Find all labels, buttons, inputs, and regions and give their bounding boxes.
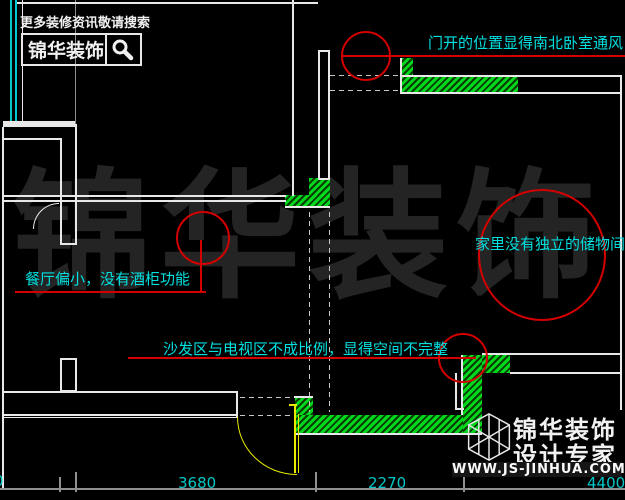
dimension-tick [315, 472, 317, 492]
annotation-red-circle-storage [478, 189, 606, 321]
hatched-wall [285, 195, 330, 206]
dashed-opening-line [240, 397, 293, 398]
hatched-wall [400, 77, 518, 92]
wall-segment-top [17, 2, 318, 4]
wall-segment [400, 75, 621, 77]
wall-segment [3, 195, 286, 197]
search-box[interactable]: 锦华装饰 [21, 33, 142, 66]
cube-logo-icon [466, 412, 512, 466]
dimension-value-partial: 0 [0, 472, 4, 490]
search-box-divider [105, 35, 107, 64]
dimension-line [0, 488, 625, 490]
wall-segment [4, 138, 60, 140]
door-leaf-line [294, 405, 296, 473]
hatched-wall [295, 415, 482, 433]
dimension-value-2270: 2270 [368, 474, 406, 492]
wall-segment [60, 138, 62, 245]
dashed-opening-line [240, 415, 293, 416]
wall-segment [294, 396, 313, 398]
annotation-red-circle-dining [176, 211, 230, 265]
wall-segment [400, 92, 621, 94]
annotation-door-vent: 门开的位置显得南北卧室通风 [428, 35, 623, 51]
hatched-wall [295, 397, 313, 415]
wall-left-edge [2, 127, 4, 489]
floor-plan-screenshot: 锦华装饰 更多装修资讯敬请搜索 锦华装饰 门开的位置显得南北卧室通风 [0, 0, 625, 500]
annotation-storage: 家里没有独立的储物间 [475, 236, 625, 252]
wall-segment [455, 408, 464, 410]
dimension-tick [75, 472, 77, 492]
door-leaf-jog [289, 404, 297, 406]
wall-cyan-line-2 [15, 0, 17, 122]
annotation-red-circle-door [341, 31, 391, 81]
dashed-opening-line [309, 212, 310, 412]
annotation-sofa-tv: 沙发区与电视区不成比例，显得空间不完整 [163, 341, 448, 357]
annotation-leader-line [200, 240, 202, 292]
wall-segment [3, 391, 238, 393]
dimension-value-3680: 3680 [178, 474, 216, 492]
wall-segment [292, 0, 294, 196]
column-outline [60, 358, 77, 392]
wall-band [3, 121, 75, 127]
wall-segment [3, 414, 238, 416]
annotation-red-line-dining [15, 291, 206, 293]
search-banner-tagline: 更多装修资讯敬请搜索 [20, 12, 150, 31]
wall-segment [60, 243, 77, 245]
wall-segment [75, 124, 77, 245]
brand-name: 锦华装饰 [23, 36, 104, 63]
dimension-tick [59, 477, 61, 492]
wall-segment [3, 200, 286, 202]
magnifier-search-icon[interactable] [111, 38, 135, 62]
wall-segment [510, 372, 621, 374]
dashed-opening-line [329, 212, 330, 412]
door-leaf-line [298, 414, 300, 473]
dashed-opening-line [330, 90, 400, 91]
wall-segment [482, 353, 621, 355]
corridor-wall [318, 50, 330, 180]
wall-segment [295, 433, 482, 435]
wall-segment [3, 417, 238, 418]
wall-cyan-line-1 [10, 0, 12, 122]
badge-url-link[interactable]: WWW.JS-JINHUA.COM [452, 462, 622, 477]
wall-segment [285, 206, 330, 208]
annotation-dining: 餐厅偏小，没有酒柜功能 [25, 271, 190, 287]
door-swing-arc-yellow [237, 417, 297, 475]
wall-segment [236, 391, 238, 418]
